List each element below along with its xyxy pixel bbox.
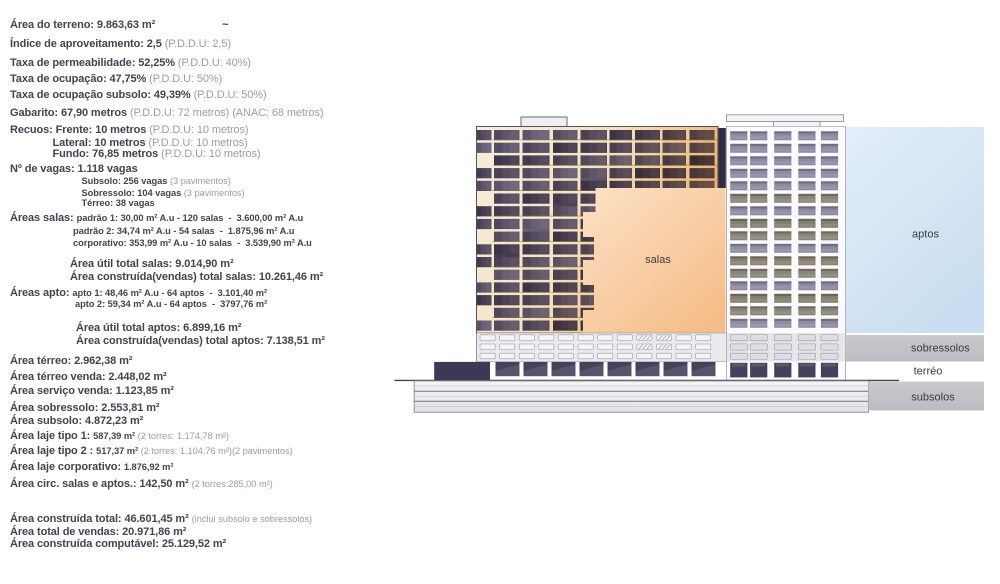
svg-text:subsolos: subsolos	[911, 392, 955, 404]
svg-text:aptos: aptos	[912, 229, 939, 241]
svg-text:terréo: terréo	[914, 366, 943, 378]
svg-text:salas: salas	[645, 254, 671, 266]
svg-text:sobressolos: sobressolos	[911, 342, 970, 354]
